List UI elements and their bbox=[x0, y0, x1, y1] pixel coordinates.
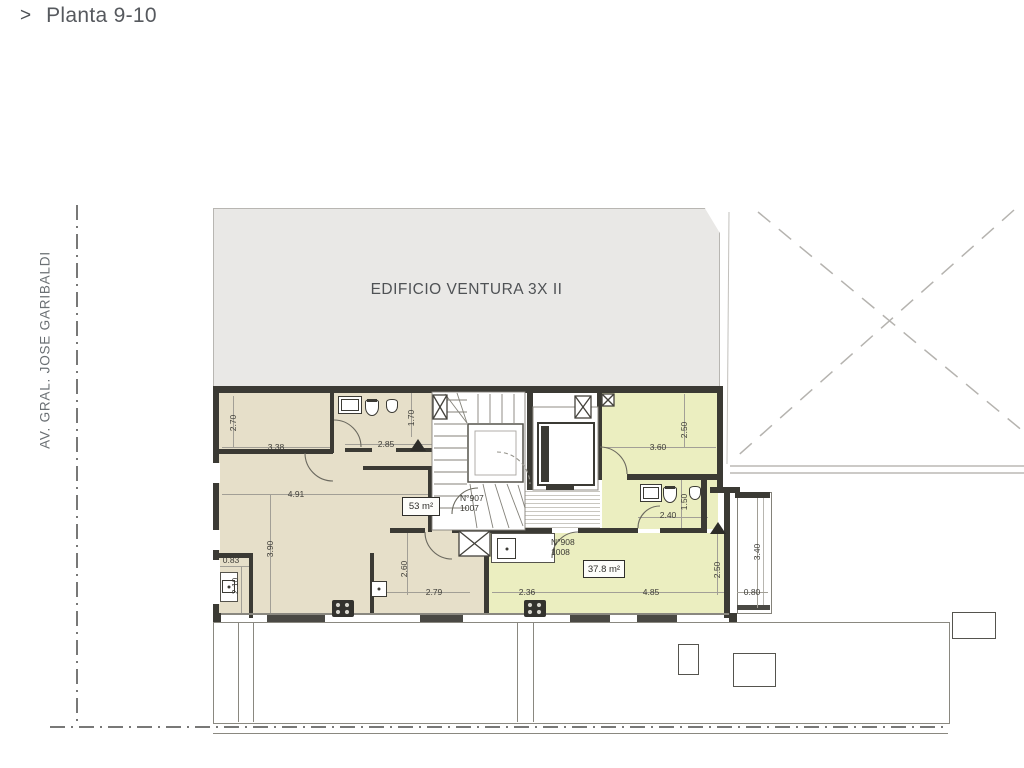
wall-segment bbox=[603, 528, 638, 533]
dim-line bbox=[378, 592, 470, 593]
bidet-icon bbox=[386, 399, 398, 413]
window-gap bbox=[211, 530, 220, 550]
balcony-sill bbox=[737, 605, 770, 610]
unit-907-number: N°907 1007 bbox=[460, 494, 484, 514]
page-title: Planta 9-10 bbox=[46, 4, 157, 28]
dim-label: 0.83 bbox=[223, 556, 240, 565]
dim-label: 3.40 bbox=[753, 544, 762, 561]
wall-segment bbox=[701, 479, 707, 533]
apron-line bbox=[517, 622, 518, 722]
stove-icon bbox=[332, 600, 354, 617]
wall-segment bbox=[578, 528, 603, 533]
unit-908-number: N°908 1008 bbox=[551, 538, 575, 558]
dim-line bbox=[219, 566, 251, 567]
wall-segment bbox=[484, 533, 489, 615]
bidet-icon bbox=[689, 486, 701, 500]
pillar-rect bbox=[733, 653, 776, 687]
dim-label: 2.70 bbox=[229, 415, 238, 432]
dim-label: 3.90 bbox=[266, 541, 275, 558]
wall-segment bbox=[729, 613, 737, 622]
unit-907-number-bottom: 1007 bbox=[460, 504, 484, 514]
adjacent-lot-x bbox=[733, 210, 1024, 460]
kitchen-sink-icon bbox=[371, 581, 387, 597]
dim-label: 3.38 bbox=[268, 443, 285, 452]
dim-label: 2.36 bbox=[519, 588, 536, 597]
dim-label: 2.85 bbox=[378, 440, 395, 449]
wall-segment bbox=[530, 407, 598, 413]
unit-908-area-box: 37.8 m² bbox=[583, 560, 625, 578]
unit-908-area: 37.8 m² bbox=[588, 564, 620, 575]
wall-segment bbox=[396, 448, 432, 452]
unit-907-kitchen-fill bbox=[432, 530, 486, 615]
pillar-rect bbox=[952, 612, 996, 639]
dim-label: 2.60 bbox=[400, 561, 409, 578]
toilet-icon bbox=[365, 399, 379, 416]
dim-label: 1.70 bbox=[407, 410, 416, 427]
corridor-landing bbox=[497, 488, 600, 530]
apron-line bbox=[253, 622, 254, 722]
dim-label: 4.85 bbox=[643, 588, 660, 597]
lot-boundary-lines bbox=[727, 212, 1024, 473]
apron-line bbox=[533, 622, 534, 722]
dim-label: 4.91 bbox=[288, 490, 305, 499]
dim-label: 1.50 bbox=[680, 494, 689, 511]
toilet-icon bbox=[663, 486, 677, 503]
sink-vanity-icon bbox=[640, 484, 662, 502]
sink-vanity-icon bbox=[338, 396, 362, 414]
dim-label: 2.40 bbox=[660, 511, 677, 520]
breadcrumb[interactable]: > Planta 9-10 bbox=[20, 4, 157, 28]
lower-floor-outline bbox=[213, 622, 950, 724]
dim-label: 3.60 bbox=[650, 443, 667, 452]
window-gap bbox=[211, 560, 220, 604]
unit-907-area: 53 m² bbox=[409, 501, 433, 512]
wall-segment bbox=[363, 466, 432, 470]
dim-label: 2.79 bbox=[426, 588, 443, 597]
stove-icon bbox=[524, 600, 546, 617]
dim-label: 2.10 bbox=[231, 578, 240, 595]
wall-segment bbox=[660, 528, 704, 533]
apron-line bbox=[238, 622, 239, 722]
elevator bbox=[533, 407, 598, 490]
wall-segment bbox=[213, 613, 221, 622]
neighbor-building-label: EDIFICIO VENTURA 3X II bbox=[214, 281, 719, 299]
floorplan-page: > Planta 9-10 AV. GRAL. JOSE GARIBALDI E… bbox=[0, 0, 1024, 768]
unit-908-bedroom-fill bbox=[602, 392, 717, 479]
street-label: AV. GRAL. JOSE GARIBALDI bbox=[38, 251, 53, 449]
wall-segment bbox=[597, 392, 602, 480]
wall-segment bbox=[735, 492, 770, 498]
unit-908-number-bottom: 1008 bbox=[551, 548, 575, 558]
wall-segment bbox=[724, 487, 730, 618]
unit-907-area-box: 53 m² bbox=[402, 497, 440, 516]
kitchen-sink-icon bbox=[497, 538, 516, 559]
dim-label: 2.50 bbox=[713, 562, 722, 579]
wall-segment bbox=[249, 558, 253, 618]
wall-segment bbox=[330, 392, 334, 453]
wall-segment bbox=[213, 386, 723, 393]
window-gap bbox=[211, 463, 220, 483]
apron-line bbox=[213, 733, 948, 734]
dim-label: 2.50 bbox=[680, 422, 689, 439]
dim-label: 0.80 bbox=[744, 588, 761, 597]
dim-line bbox=[222, 494, 433, 495]
wall-segment bbox=[717, 386, 723, 487]
dim-line bbox=[241, 566, 242, 615]
pillar-rect bbox=[678, 644, 699, 675]
wall-segment bbox=[345, 448, 372, 452]
chevron-right-icon[interactable]: > bbox=[20, 5, 31, 27]
wall-segment bbox=[452, 528, 470, 533]
neighbor-building-block: EDIFICIO VENTURA 3X II bbox=[213, 208, 720, 388]
wall-segment bbox=[390, 528, 425, 533]
